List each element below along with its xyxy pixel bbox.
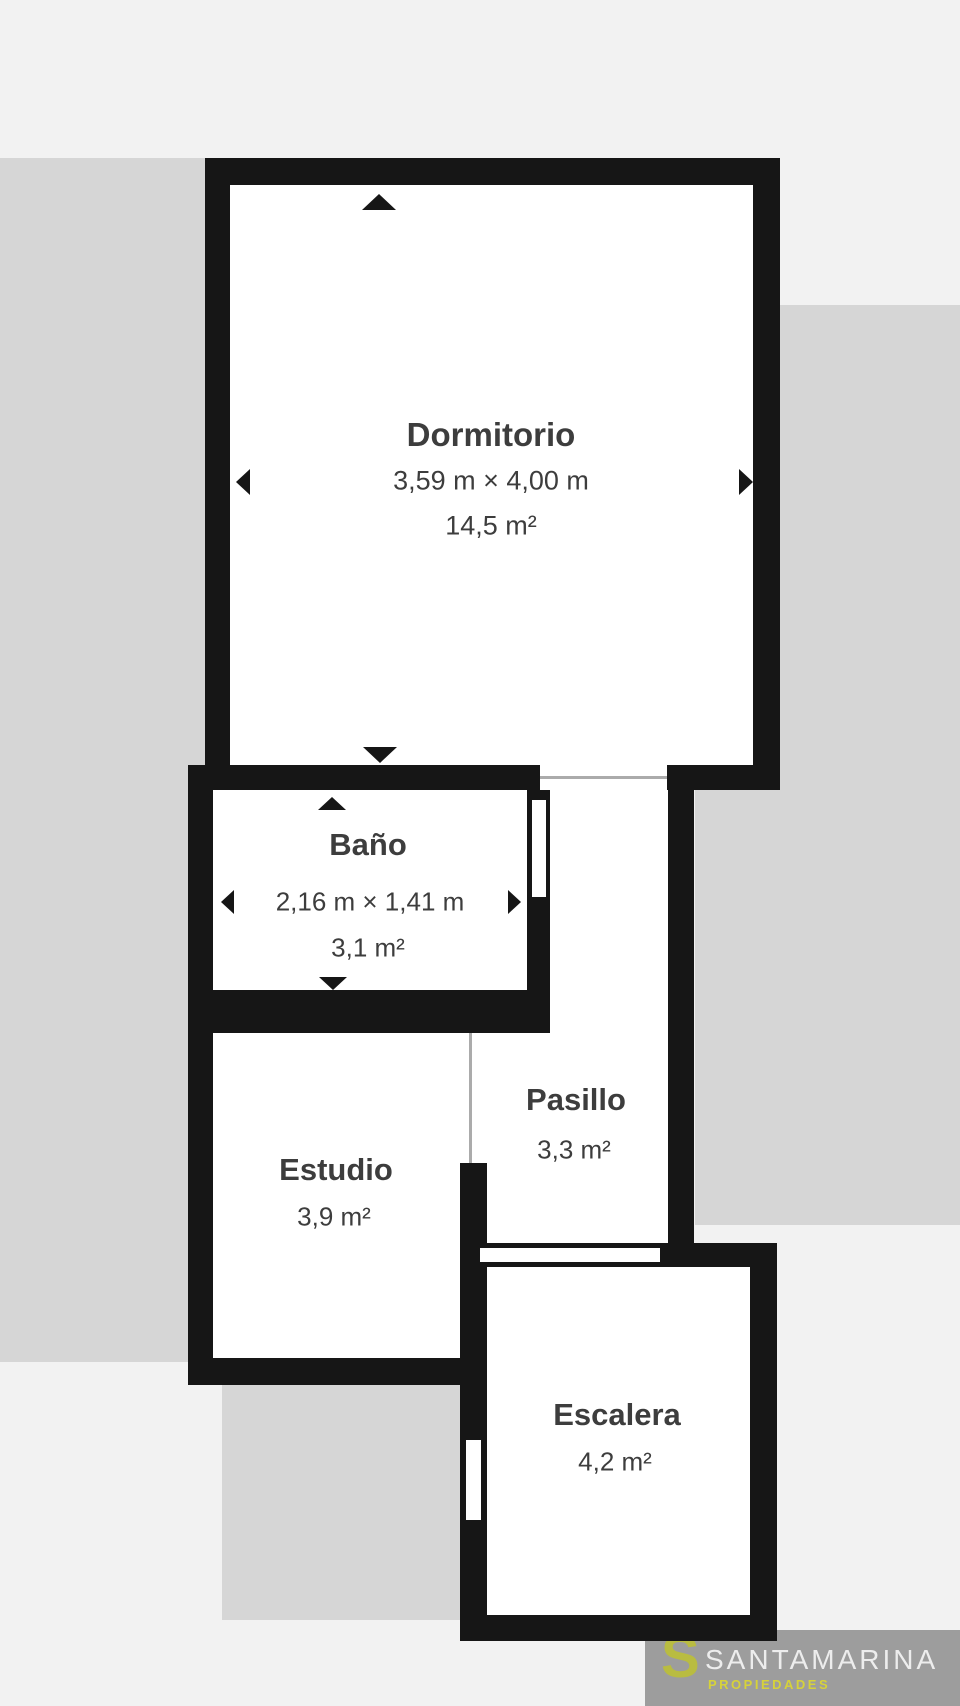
floor-plan: S SANTAMARINA PROPIEDADES Dormitorio 3,5… xyxy=(0,0,960,1706)
dormitorio-name-label: Dormitorio xyxy=(407,416,576,454)
escalera-area-label: 4,2 m² xyxy=(578,1447,652,1478)
doorway-dormitorio-pasillo-line xyxy=(540,776,667,779)
adjacent-area-right-lower xyxy=(695,790,960,1225)
opening-estudio-pasillo-line xyxy=(469,1033,472,1163)
wall-escalera-bottom xyxy=(460,1615,777,1641)
adjacent-area-right-upper xyxy=(780,305,960,790)
room-pasillo xyxy=(550,790,668,1243)
door-pasillo-escalera xyxy=(480,1248,660,1262)
agency-name: SANTAMARINA xyxy=(705,1644,938,1676)
dormitorio-area-label: 14,5 m² xyxy=(445,511,537,542)
bano-name-label: Baño xyxy=(329,827,407,863)
estudio-name-label: Estudio xyxy=(279,1152,393,1188)
wall-escalera-right xyxy=(750,1243,777,1641)
dimension-arrow-right-icon xyxy=(739,469,753,495)
pasillo-name-label: Pasillo xyxy=(526,1082,626,1118)
wall-pasillo-right xyxy=(668,765,694,1267)
bano-dimensions-label: 2,16 m × 1,41 m xyxy=(276,887,465,918)
adjacent-area-left xyxy=(0,158,205,1362)
wall-estudio-bottom xyxy=(188,1358,487,1385)
dimension-arrow-left-icon xyxy=(221,890,234,914)
dormitorio-dimensions-label: 3,59 m × 4,00 m xyxy=(393,466,589,497)
door-escalera-left xyxy=(466,1440,481,1520)
dimension-arrow-up-icon xyxy=(318,797,346,810)
wall-dormitorio-left xyxy=(205,158,230,790)
wall-dormitorio-top xyxy=(205,158,780,185)
door-bano xyxy=(532,800,546,897)
wall-bano-estudio-left xyxy=(188,765,213,1385)
dimension-arrow-up-icon xyxy=(362,194,396,210)
agency-tagline: PROPIEDADES xyxy=(708,1677,830,1692)
dimension-arrow-left-icon xyxy=(236,469,250,495)
dimension-arrow-right-icon xyxy=(508,890,521,914)
room-estudio xyxy=(213,1033,460,1358)
dimension-arrow-down-icon xyxy=(363,747,397,763)
estudio-area-label: 3,9 m² xyxy=(297,1202,371,1233)
adjacent-area-bottom-middle xyxy=(222,1385,461,1620)
bano-area-label: 3,1 m² xyxy=(331,933,405,964)
wall-dormitorio-right xyxy=(753,158,780,790)
escalera-name-label: Escalera xyxy=(553,1397,681,1433)
agency-logo: S SANTAMARINA PROPIEDADES xyxy=(645,1630,960,1706)
dimension-arrow-down-icon xyxy=(319,977,347,990)
opening-estudio-pasillo xyxy=(460,1033,487,1163)
room-escalera xyxy=(487,1267,750,1615)
wall-bano-bottom-estudio-top xyxy=(188,990,550,1033)
pasillo-area-label: 3,3 m² xyxy=(537,1135,611,1166)
